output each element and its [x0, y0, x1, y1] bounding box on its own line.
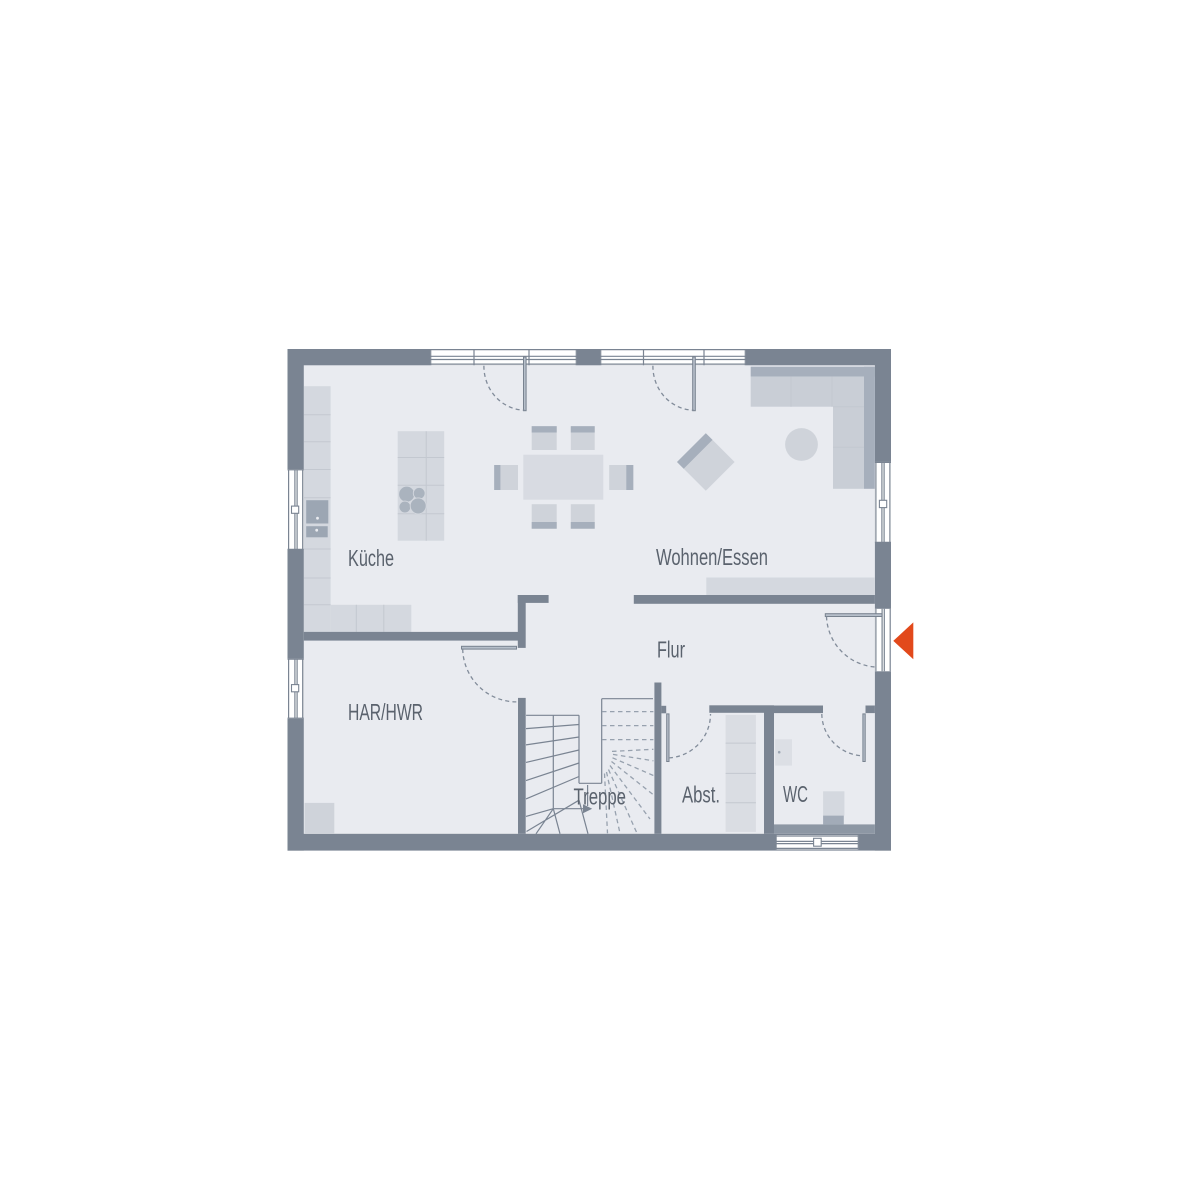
svg-text:HAR/HWR: HAR/HWR: [348, 699, 423, 725]
svg-text:Abst.: Abst.: [682, 782, 720, 808]
svg-text:Wohnen/Essen: Wohnen/Essen: [656, 544, 768, 570]
svg-text:Treppe: Treppe: [574, 784, 627, 810]
svg-text:Flur: Flur: [657, 637, 685, 663]
svg-text:Küche: Küche: [348, 545, 394, 571]
svg-text:WC: WC: [783, 781, 808, 807]
